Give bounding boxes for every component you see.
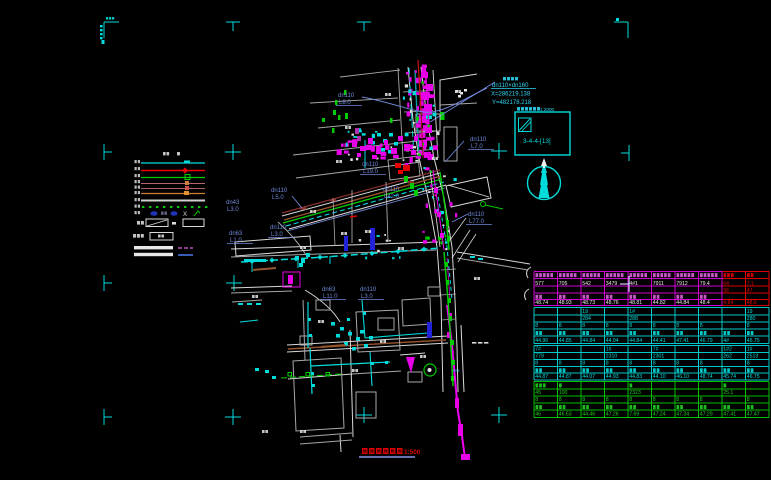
svg-text:8: 8 <box>700 397 703 403</box>
svg-text:8: 8 <box>653 323 656 329</box>
svg-text:44.94: 44.94 <box>606 338 619 344</box>
svg-text:8: 8 <box>606 360 609 366</box>
svg-text:1:2000: 1:2000 <box>540 107 554 112</box>
svg-text:8: 8 <box>559 323 562 329</box>
svg-text:8: 8 <box>535 397 538 403</box>
svg-text:dn110: dn110 <box>338 93 355 99</box>
svg-text:44.84: 44.84 <box>582 338 595 344</box>
svg-text:8: 8 <box>700 360 703 366</box>
svg-text:7#: 7# <box>535 346 541 352</box>
svg-text:36: 36 <box>723 288 729 294</box>
svg-text:2323: 2323 <box>629 390 641 396</box>
svg-text:L3.0: L3.0 <box>227 207 239 213</box>
svg-text:48.74: 48.74 <box>535 300 548 306</box>
svg-text:79.4: 79.4 <box>700 281 710 287</box>
svg-text:1#: 1# <box>606 346 612 352</box>
svg-text:44.41: 44.41 <box>653 338 666 344</box>
svg-text:44.46: 44.46 <box>582 412 595 418</box>
svg-text:7911: 7911 <box>653 281 664 287</box>
svg-text:dn43: dn43 <box>226 200 240 206</box>
svg-text:8: 8 <box>559 397 562 403</box>
svg-text:7912: 7912 <box>676 281 688 287</box>
svg-text:19: 19 <box>747 309 753 315</box>
svg-text:8: 8 <box>629 323 632 329</box>
svg-text:577: 577 <box>535 281 544 287</box>
svg-text:1#2: 1#2 <box>723 346 732 352</box>
svg-text:48.93: 48.93 <box>559 300 572 306</box>
svg-text:48.73: 48.73 <box>582 300 595 306</box>
svg-text:8: 8 <box>582 360 585 366</box>
svg-text:L42.0: L42.0 <box>384 194 400 200</box>
svg-text:8: 8 <box>747 397 750 403</box>
svg-text:1#: 1# <box>747 346 753 352</box>
svg-text:47.29: 47.29 <box>700 412 713 418</box>
svg-text:8: 8 <box>535 323 538 329</box>
svg-text:dn110: dn110 <box>360 287 377 293</box>
svg-text:47.24: 47.24 <box>653 412 666 418</box>
svg-text:47.41: 47.41 <box>676 338 689 344</box>
svg-text:288: 288 <box>629 316 638 322</box>
svg-text:8: 8 <box>747 360 750 366</box>
svg-text:542: 542 <box>582 281 591 287</box>
svg-text:100: 100 <box>559 390 568 396</box>
svg-text:705: 705 <box>559 281 568 287</box>
svg-text:dn110: dn110 <box>362 162 379 168</box>
svg-text:48.81: 48.81 <box>629 300 642 306</box>
svg-text:dn63: dn63 <box>229 231 243 237</box>
svg-text:45.74: 45.74 <box>723 374 736 380</box>
svg-text:7.69: 7.69 <box>629 412 639 418</box>
svg-text:8: 8 <box>606 323 609 329</box>
svg-text:44.93: 44.93 <box>606 374 619 380</box>
svg-text:46.63: 46.63 <box>559 412 572 418</box>
svg-text:L5.0: L5.0 <box>272 195 284 201</box>
svg-text:dn63: dn63 <box>322 287 336 293</box>
svg-text:X: X <box>183 212 187 218</box>
svg-text:25.1: 25.1 <box>723 390 733 396</box>
svg-text:48.6: 48.6 <box>747 300 757 306</box>
svg-text:262: 262 <box>723 353 732 359</box>
svg-text:48.74: 48.74 <box>700 374 713 380</box>
svg-text:48.4: 48.4 <box>700 300 710 306</box>
svg-text:46.75: 46.75 <box>747 374 760 380</box>
svg-text:X=286219.138: X=286219.138 <box>491 92 531 98</box>
svg-text:8: 8 <box>700 323 703 329</box>
svg-text:8: 8 <box>629 360 632 366</box>
svg-text:44.83: 44.83 <box>629 374 642 380</box>
svg-text:3-4-4-[13]: 3-4-4-[13] <box>523 138 551 145</box>
svg-text:48.76: 48.76 <box>606 300 619 306</box>
svg-text:44.84: 44.84 <box>676 300 689 306</box>
svg-text:8: 8 <box>582 397 585 403</box>
svg-text:47: 47 <box>747 288 753 294</box>
svg-text:7#: 7# <box>653 346 659 352</box>
svg-text:44.85: 44.85 <box>559 338 572 344</box>
svg-text:4.84: 4.84 <box>723 300 733 306</box>
svg-text:8: 8 <box>653 397 656 403</box>
svg-text:44.82: 44.82 <box>653 300 666 306</box>
svg-text:44.10: 44.10 <box>653 374 666 380</box>
svg-text:dn110: dn110 <box>468 212 485 218</box>
svg-text:47.47: 47.47 <box>747 412 760 418</box>
svg-text:1#: 1# <box>629 309 635 315</box>
svg-text:47.26: 47.26 <box>606 412 619 418</box>
svg-text:284: 284 <box>582 316 591 322</box>
svg-text:dn110: dn110 <box>270 225 287 231</box>
svg-text:8: 8 <box>747 323 750 329</box>
svg-text:46.79: 46.79 <box>700 338 713 344</box>
svg-text:46.75: 46.75 <box>747 338 760 344</box>
svg-text:4#1: 4#1 <box>629 281 638 287</box>
svg-text:8: 8 <box>606 397 609 403</box>
svg-text:6%: 6% <box>453 368 460 373</box>
svg-text:19: 19 <box>582 309 588 315</box>
svg-text:dn110: dn110 <box>271 188 288 194</box>
svg-text:Y=482178.218: Y=482178.218 <box>492 100 532 106</box>
svg-text:8: 8 <box>653 360 656 366</box>
svg-text:8: 8 <box>535 360 538 366</box>
svg-text:44.07: 44.07 <box>582 374 595 380</box>
svg-text:46: 46 <box>535 412 541 418</box>
svg-text:2513: 2513 <box>747 353 759 359</box>
svg-text:44.87: 44.87 <box>559 374 572 380</box>
svg-text:8: 8 <box>629 397 632 403</box>
svg-text:8: 8 <box>676 360 679 366</box>
svg-text:280: 280 <box>747 316 756 322</box>
svg-text:44.84: 44.84 <box>629 338 642 344</box>
svg-text:7.1: 7.1 <box>747 281 754 287</box>
svg-text:dn110: dn110 <box>470 137 487 143</box>
svg-text:2310: 2310 <box>606 353 618 359</box>
svg-text:8: 8 <box>559 360 562 366</box>
svg-text:4#: 4# <box>723 338 729 344</box>
svg-text:dn110: dn110 <box>383 187 400 193</box>
svg-text:44.87: 44.87 <box>535 374 548 380</box>
svg-text:44.96: 44.96 <box>535 338 548 344</box>
svg-text:3479: 3479 <box>606 281 618 287</box>
svg-text:8: 8 <box>582 323 585 329</box>
svg-text:8: 8 <box>676 323 679 329</box>
svg-text:47.41: 47.41 <box>723 412 736 418</box>
svg-text:1:500: 1:500 <box>404 449 421 456</box>
svg-text:779: 779 <box>535 353 544 359</box>
svg-text:45: 45 <box>535 390 541 396</box>
svg-text:64: 64 <box>723 281 729 287</box>
svg-text:46.10: 46.10 <box>676 374 689 380</box>
svg-text:47.34: 47.34 <box>676 412 689 418</box>
svg-text:8: 8 <box>676 397 679 403</box>
svg-text:2301: 2301 <box>653 353 665 359</box>
